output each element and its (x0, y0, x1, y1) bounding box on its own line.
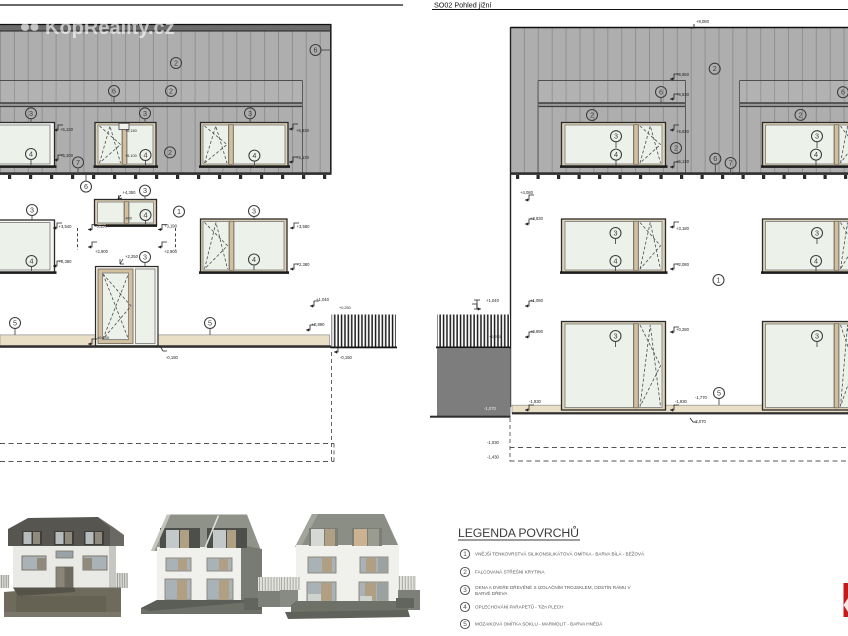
svg-text:FALCOVANÁ STŘEŠNÍ KRYTINA: FALCOVANÁ STŘEŠNÍ KRYTINA (475, 568, 545, 575)
svg-text:4: 4 (29, 150, 33, 159)
svg-text:2: 2 (168, 148, 172, 157)
svg-text:+1,040: +1,040 (316, 297, 330, 302)
svg-text:+2,380: +2,380 (59, 259, 73, 264)
svg-text:6: 6 (112, 87, 116, 96)
svg-text:-2,070: -2,070 (694, 419, 707, 424)
svg-text:+2,080: +2,080 (676, 262, 690, 267)
svg-text:7: 7 (76, 158, 80, 167)
svg-text:+5,930: +5,930 (676, 129, 690, 134)
svg-text:OKNA A DVEŘE DŘEVĚNÉ S IZOLAČN: OKNA A DVEŘE DŘEVĚNÉ S IZOLAČNÍM TROJSKL… (475, 583, 632, 590)
svg-text:+5,130: +5,130 (296, 155, 310, 160)
svg-text:-0,150: -0,150 (340, 355, 353, 360)
svg-text:-1,430: -1,430 (487, 455, 500, 460)
svg-text:KopReality.cz: KopReality.cz (45, 17, 175, 39)
svg-text:3: 3 (248, 109, 252, 118)
svg-text:3: 3 (143, 253, 147, 262)
svg-text:3: 3 (143, 109, 147, 118)
svg-text:+5,130: +5,130 (676, 159, 690, 164)
svg-text:-1,930: -1,930 (529, 399, 542, 404)
svg-text:OPLECHOVÁNÍ PARAPETŮ - TiZn PL: OPLECHOVÁNÍ PARAPETŮ - TiZn PLECH (475, 604, 564, 610)
svg-text:1: 1 (177, 207, 181, 216)
svg-text:3: 3 (614, 229, 618, 238)
svg-text:+8,080: +8,080 (696, 19, 710, 24)
svg-text:6: 6 (841, 88, 845, 97)
svg-text:3: 3 (614, 132, 618, 141)
svg-text:2: 2 (590, 111, 594, 120)
svg-text:6: 6 (314, 46, 318, 55)
svg-text:+2,380: +2,380 (297, 262, 311, 267)
svg-text:2: 2 (174, 59, 178, 68)
svg-text:-1,070: -1,070 (484, 406, 497, 411)
svg-text:4: 4 (463, 604, 467, 611)
svg-text:6: 6 (659, 88, 663, 97)
svg-text:5: 5 (13, 319, 17, 328)
svg-text:3: 3 (252, 207, 256, 216)
svg-text:4: 4 (252, 255, 256, 264)
svg-text:4: 4 (144, 211, 148, 220)
svg-text:+4,350: +4,350 (123, 190, 137, 195)
svg-text:+1,040: +1,040 (486, 298, 500, 303)
svg-text:4: 4 (30, 257, 34, 266)
svg-text:2: 2 (463, 569, 467, 576)
svg-text:±0,000: ±0,000 (97, 335, 110, 340)
svg-text:400: 400 (126, 217, 132, 221)
svg-text:1: 1 (717, 276, 721, 285)
svg-text:+0,250: +0,250 (339, 306, 351, 310)
svg-text:3: 3 (29, 109, 33, 118)
svg-text:LEGENDA POVRCHŮ: LEGENDA POVRCHŮ (458, 525, 579, 540)
svg-text:4: 4 (814, 150, 818, 159)
svg-text:SO02 Pohled jižní: SO02 Pohled jižní (434, 1, 492, 10)
svg-text:+6,950: +6,950 (676, 72, 690, 77)
svg-text:5: 5 (717, 389, 721, 398)
svg-text:+5,100: +5,100 (60, 153, 74, 158)
svg-text:2: 2 (674, 144, 678, 153)
svg-text:3: 3 (614, 332, 618, 341)
svg-text:4: 4 (814, 257, 818, 266)
svg-text:-0,150: -0,150 (166, 355, 179, 360)
svg-text:-1,930: -1,930 (675, 399, 688, 404)
svg-text:5: 5 (208, 319, 212, 328)
svg-text:4: 4 (614, 257, 618, 266)
svg-text:4: 4 (614, 150, 618, 159)
svg-text:+5,930: +5,930 (296, 128, 310, 133)
svg-text:VNĚJŠÍ TENKOVRSTVÁ SILIKONSILI: VNĚJŠÍ TENKOVRSTVÁ SILIKONSILIKÁTOVÁ OMÍ… (475, 550, 645, 557)
svg-text:+3,830: +3,830 (530, 216, 544, 221)
svg-text:+1,080: +1,080 (530, 298, 544, 303)
svg-text:+3,580: +3,580 (297, 224, 311, 229)
svg-text:3: 3 (815, 132, 819, 141)
svg-text:BARVĚ DŘEVA: BARVĚ DŘEVA (475, 589, 508, 596)
svg-text:+3,540: +3,540 (59, 224, 73, 229)
svg-text:+3,180: +3,180 (676, 226, 690, 231)
svg-text:4: 4 (252, 151, 256, 160)
svg-text:3: 3 (815, 332, 819, 341)
svg-text:2: 2 (169, 87, 173, 96)
svg-text:+5,130: +5,130 (60, 127, 74, 132)
svg-text:+5,150: +5,150 (125, 129, 137, 133)
svg-text:+0,890: +0,890 (312, 322, 326, 327)
svg-text:3: 3 (815, 229, 819, 238)
svg-text:+2,900: +2,900 (95, 249, 109, 254)
svg-text:2: 2 (799, 110, 803, 119)
svg-text:+0,890: +0,890 (530, 329, 544, 334)
svg-text:MOZAIKOVÁ OMÍTKA SOKLU - MARMO: MOZAIKOVÁ OMÍTKA SOKLU - MARMOLIT - BARV… (475, 620, 603, 627)
svg-text:1: 1 (463, 551, 467, 558)
svg-text:+6,530: +6,530 (676, 92, 690, 97)
svg-text:+2,250: +2,250 (125, 254, 139, 259)
svg-text:2: 2 (713, 64, 717, 73)
svg-text:4: 4 (144, 151, 148, 160)
svg-text:+4,080: +4,080 (520, 190, 534, 195)
svg-text:7: 7 (729, 159, 733, 168)
svg-text:-1,770: -1,770 (695, 395, 708, 400)
svg-text:+5,100: +5,100 (125, 154, 137, 158)
svg-text:5: 5 (463, 621, 467, 628)
svg-text:+0,280: +0,280 (676, 327, 690, 332)
svg-text:3: 3 (143, 186, 147, 195)
svg-text:6: 6 (84, 182, 88, 191)
svg-text:6: 6 (713, 154, 717, 163)
svg-text:+3,190: +3,190 (164, 224, 178, 229)
svg-text:3: 3 (30, 206, 34, 215)
svg-text:-1,030: -1,030 (487, 440, 500, 445)
svg-text:+0,250: +0,250 (489, 335, 501, 339)
svg-text:+3,150: +3,150 (94, 224, 108, 229)
svg-text:3: 3 (463, 587, 467, 594)
